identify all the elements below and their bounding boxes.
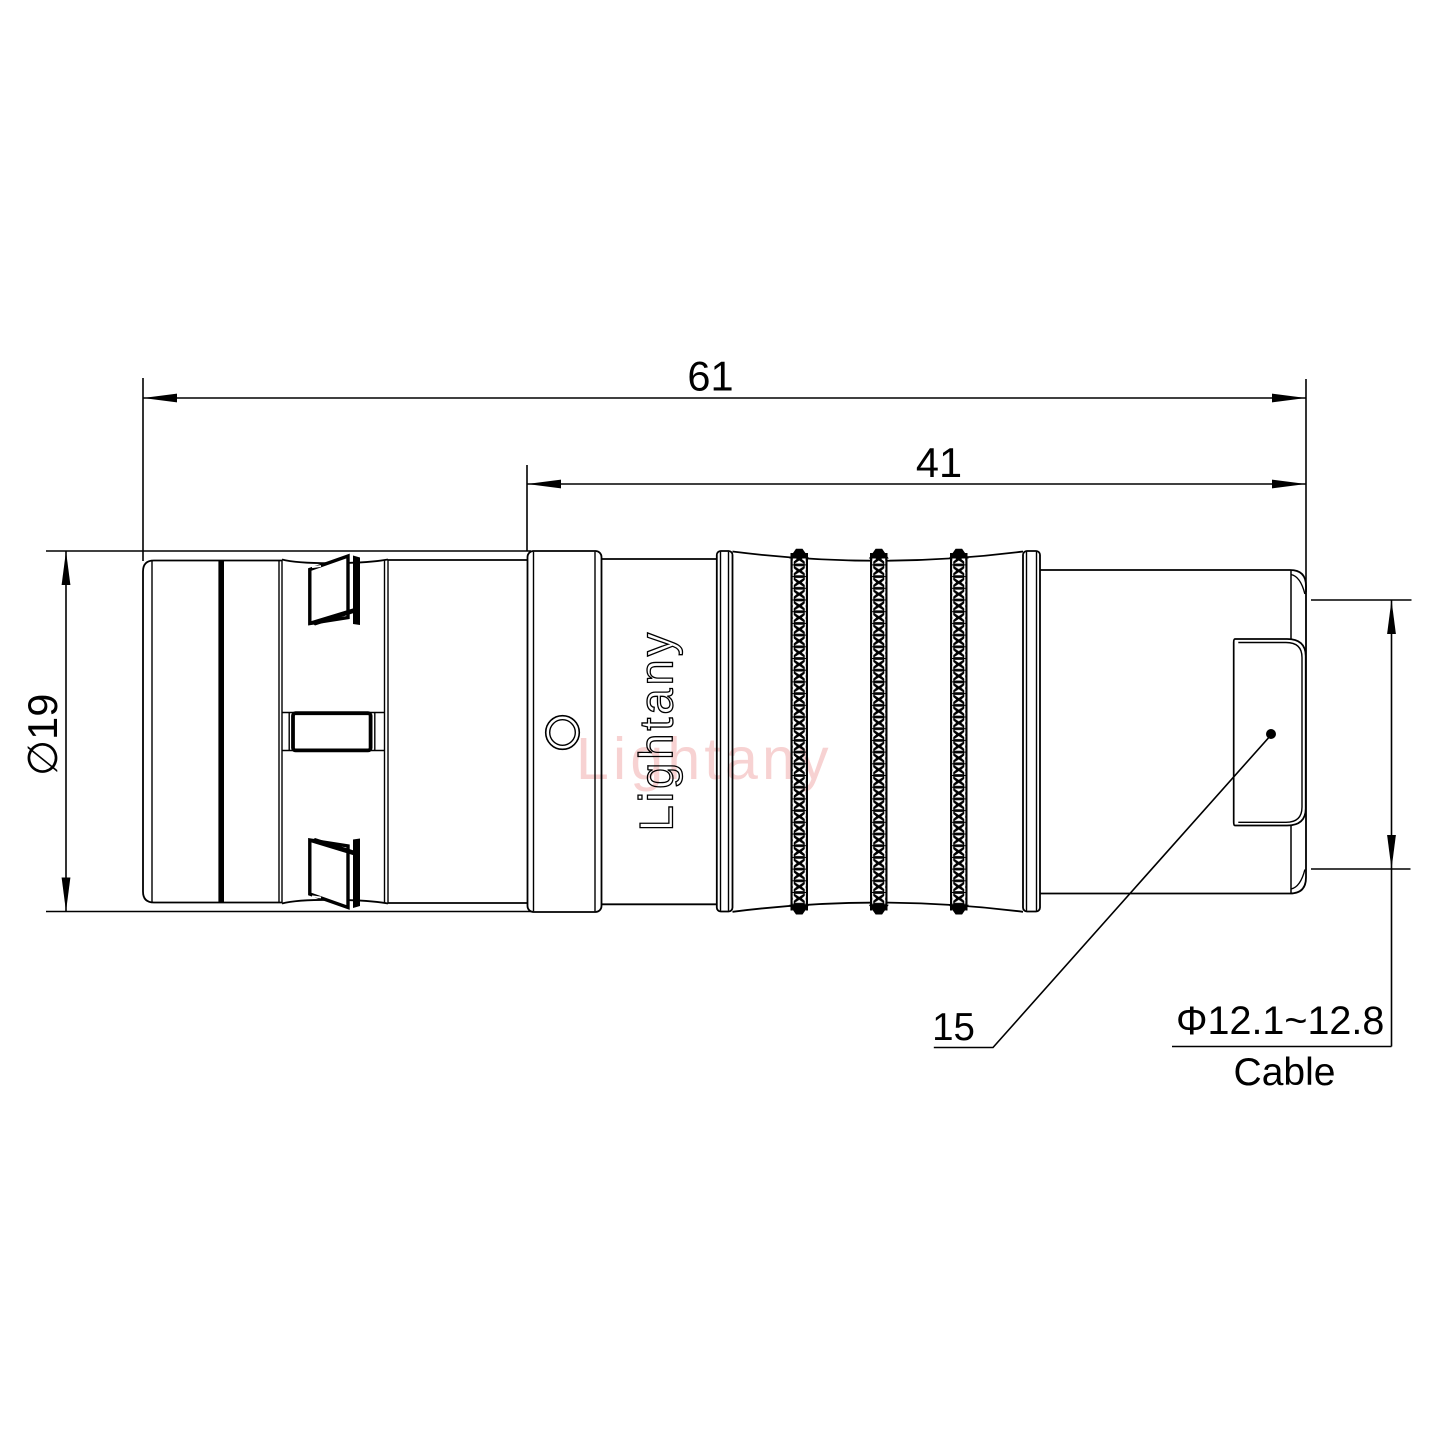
svg-text:Φ12.1~12.8: Φ12.1~12.8 (1176, 999, 1384, 1043)
svg-text:Cable: Cable (1234, 1051, 1336, 1094)
svg-text:Lightany: Lightany (576, 726, 833, 792)
svg-text:∅19: ∅19 (19, 694, 66, 776)
svg-text:15: 15 (932, 1006, 975, 1049)
svg-text:41: 41 (916, 439, 962, 486)
svg-text:61: 61 (687, 353, 733, 400)
